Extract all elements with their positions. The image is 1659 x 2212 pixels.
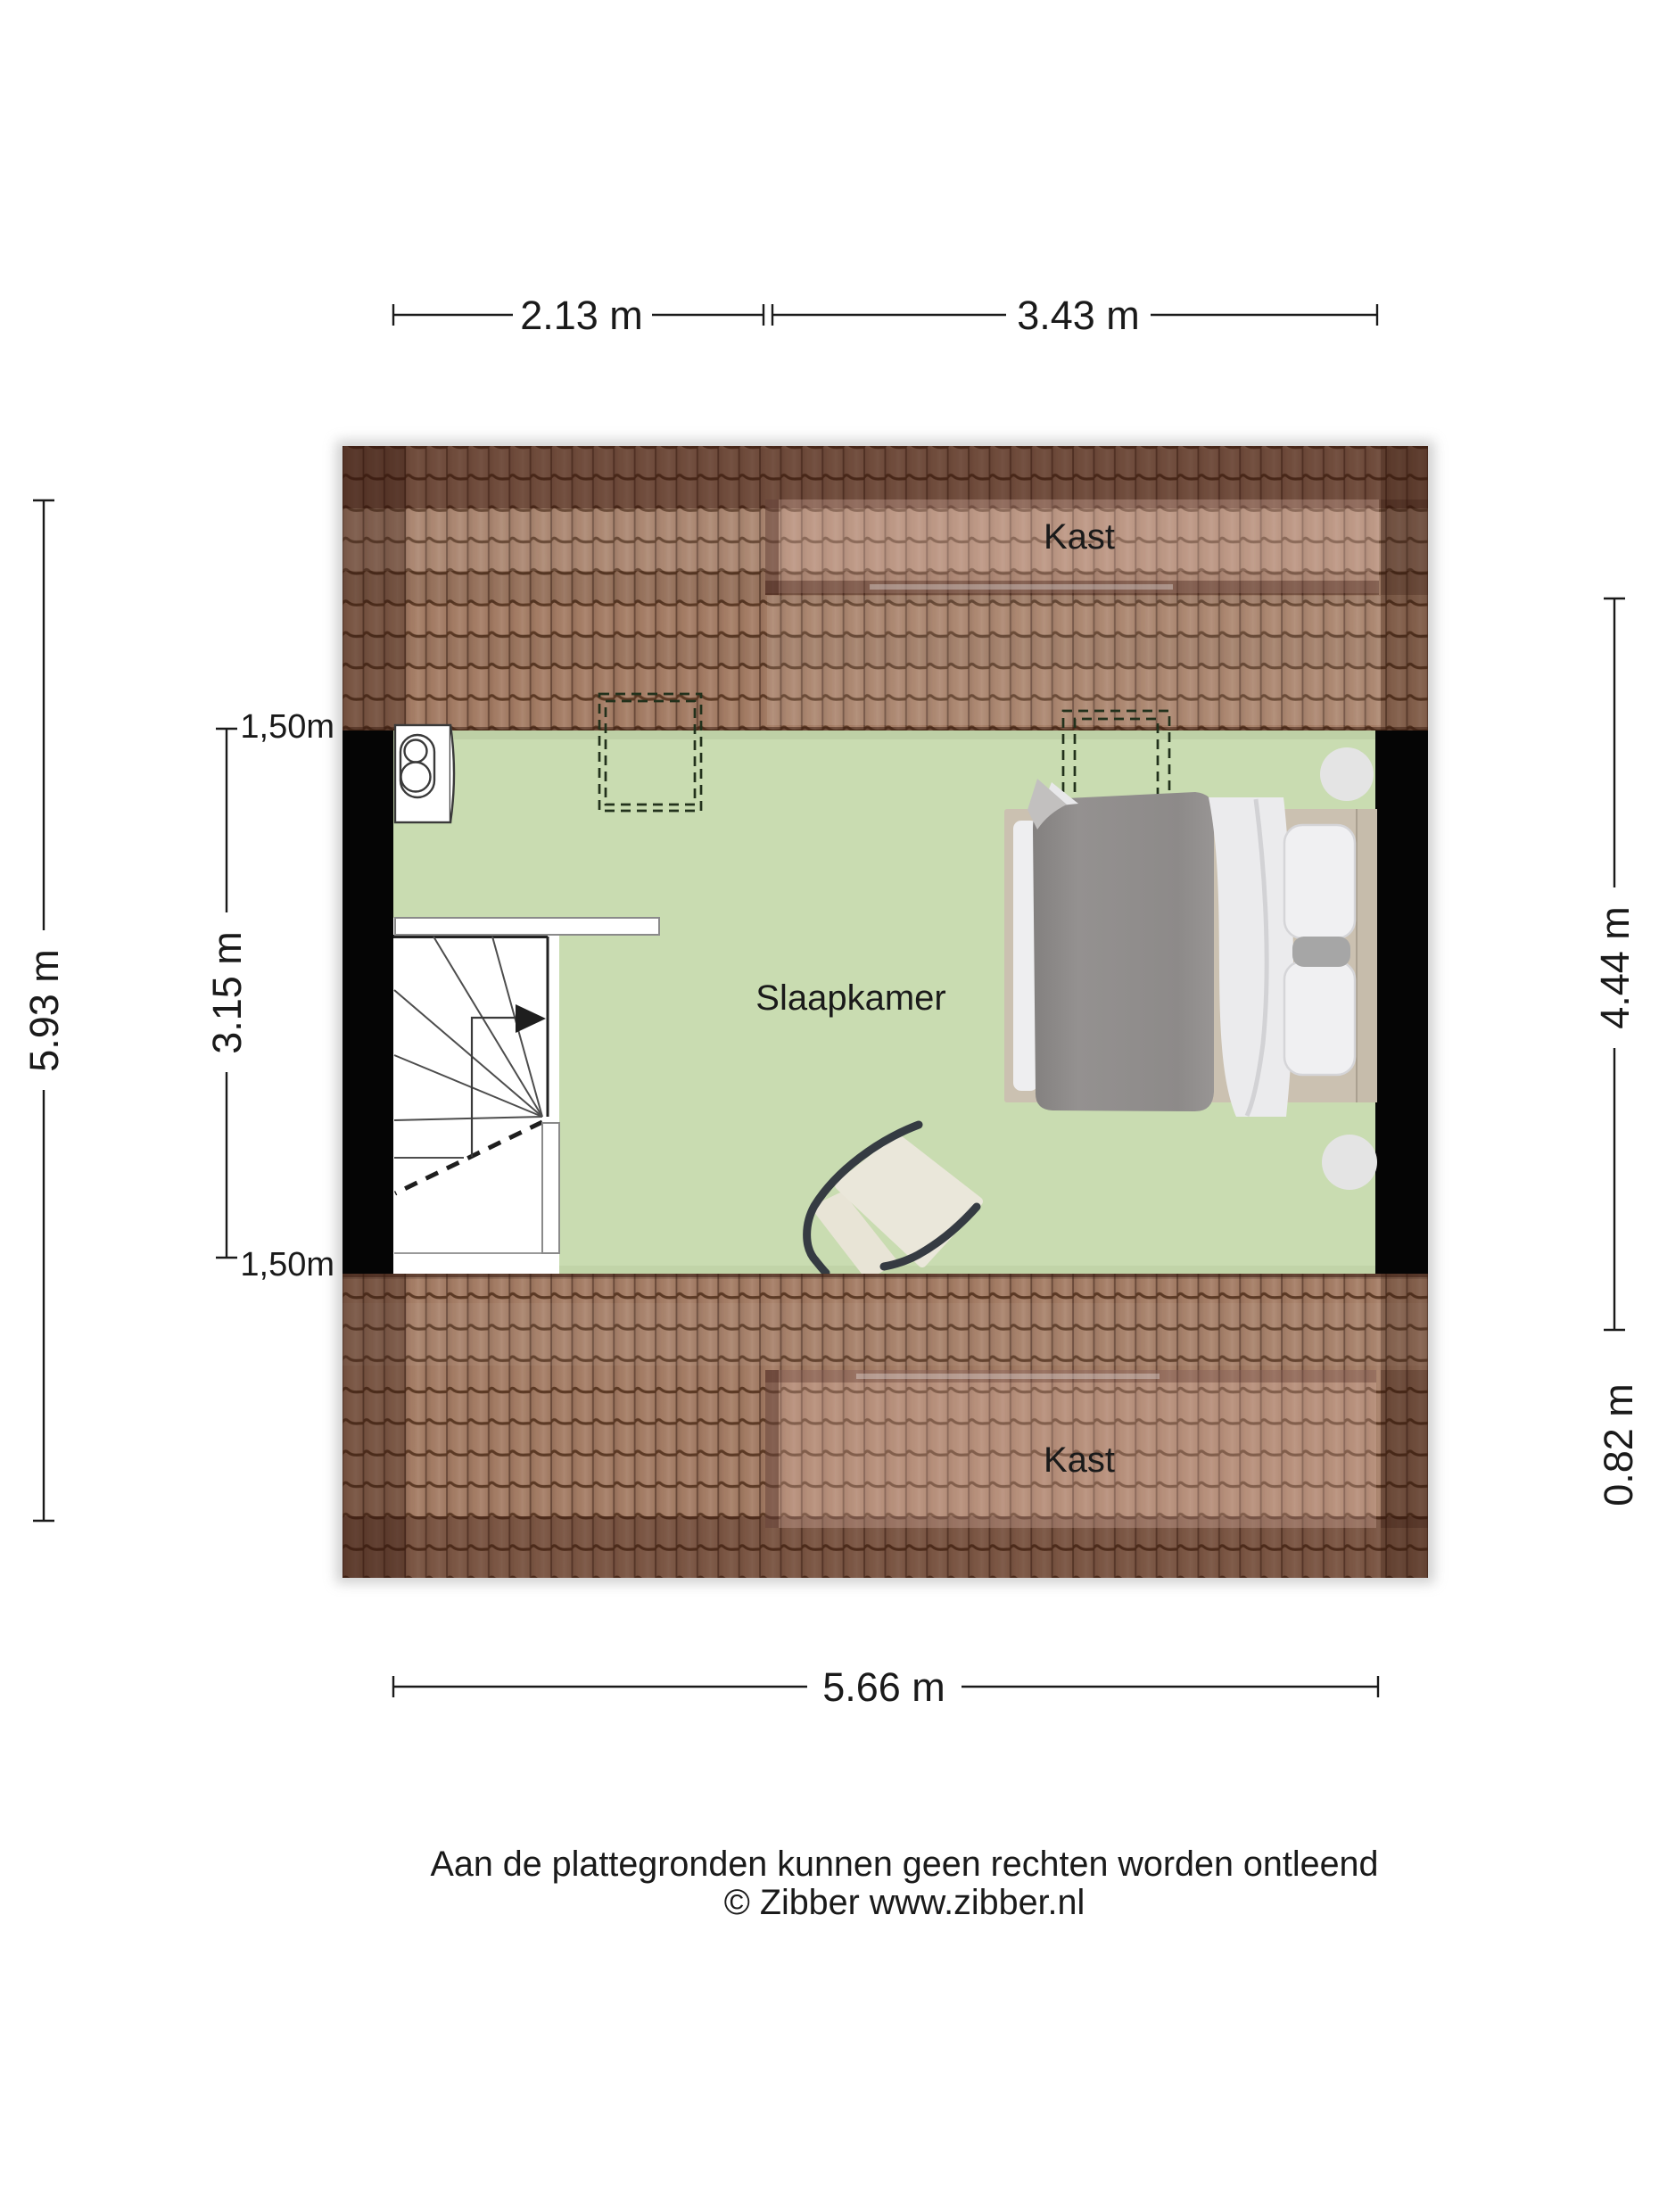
svg-text:4.44 m: 4.44 m: [1592, 906, 1638, 1029]
svg-text:© Zibber www.zibber.nl: © Zibber www.zibber.nl: [724, 1883, 1085, 1922]
svg-text:5.66 m: 5.66 m: [822, 1664, 945, 1710]
svg-text:1,50m: 1,50m: [240, 1246, 334, 1283]
svg-text:3.43 m: 3.43 m: [1017, 293, 1140, 338]
svg-text:0.82 m: 0.82 m: [1596, 1383, 1641, 1506]
svg-text:2.13 m: 2.13 m: [520, 293, 643, 338]
svg-text:Slaapkamer: Slaapkamer: [755, 978, 945, 1018]
svg-text:1,50m: 1,50m: [240, 708, 334, 746]
svg-text:5.93 m: 5.93 m: [21, 949, 67, 1072]
svg-text:Kast: Kast: [1044, 517, 1115, 557]
svg-text:3.15 m: 3.15 m: [204, 931, 250, 1054]
svg-text:Aan de plattegronden kunnen ge: Aan de plattegronden kunnen geen rechten…: [431, 1845, 1379, 1884]
svg-text:Kast: Kast: [1044, 1440, 1115, 1480]
